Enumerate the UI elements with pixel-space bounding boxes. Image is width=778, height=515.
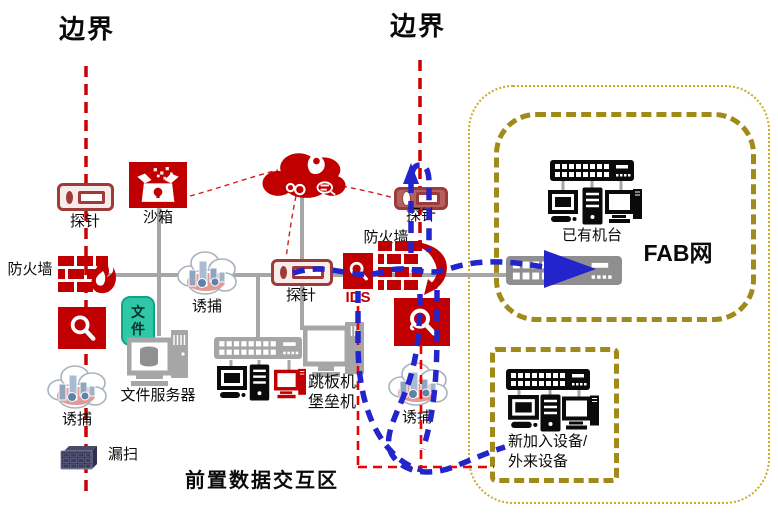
probe-left-label: 探针 — [50, 213, 120, 231]
threat-intel-cloud-icon — [259, 146, 349, 205]
new-devices-label-line1: 新加入设备/ — [508, 433, 616, 451]
new-devices-label-line2: 外来设备 — [508, 453, 616, 471]
red-terminal-icon — [274, 368, 306, 405]
honeypot-cloud-bottom-icon — [385, 357, 451, 414]
probe-led-icon — [280, 266, 287, 279]
boundary-right-label: 边界 — [383, 11, 453, 42]
decoy-bottom-label: 诱捕 — [382, 409, 452, 427]
switch-fab-icon — [506, 255, 622, 291]
vuln-scan-label: 漏扫 — [100, 446, 146, 464]
ids-label: IDS — [340, 289, 376, 307]
probe-center-device-icon — [271, 259, 333, 286]
switch-existing-icon — [550, 160, 634, 186]
jump-server-label-line2: 堡垒机 — [308, 393, 368, 412]
desktop-icon — [548, 190, 578, 228]
server-tower-icon — [249, 364, 270, 406]
probe-led-icon — [66, 191, 73, 204]
sandbox-icon — [129, 162, 187, 208]
front-zone-label: 前置数据交互区 — [162, 469, 362, 493]
probe-led-icon — [402, 191, 411, 206]
arrowhead-up-loop — [403, 163, 419, 184]
boundary-left-label: 边界 — [52, 14, 122, 45]
probe-center-label: 探针 — [266, 287, 336, 305]
file-server-label: 文件服务器 — [108, 387, 208, 405]
honeypot-cloud-left-icon — [44, 360, 110, 417]
probe-slot-icon — [416, 192, 440, 205]
jump-server-label-line1: 跳板机/ — [308, 373, 370, 392]
firewall-left-icon — [58, 256, 116, 296]
file-server-icon — [127, 330, 195, 393]
desktop-icon — [217, 366, 247, 404]
decoy-left-label: 诱捕 — [42, 411, 112, 429]
server-tower-icon — [540, 393, 561, 438]
server-tower-icon — [582, 187, 603, 230]
switch-center-icon — [214, 336, 302, 365]
probe-left-device-icon — [57, 183, 114, 211]
workstation-icon — [562, 395, 599, 436]
fab-net-label: FAB网 — [632, 240, 724, 268]
switch-new-devices-icon — [506, 369, 590, 395]
ids-icon — [343, 253, 373, 289]
decoy-center-label: 诱捕 — [172, 298, 242, 316]
audit-search-icon — [394, 298, 450, 346]
probe-slot-icon — [78, 191, 105, 204]
firewall-left-label: 防火墙 — [4, 261, 56, 279]
vuln-scan-icon — [60, 446, 98, 477]
firewall-right-icon — [378, 241, 452, 302]
probe-slot-icon — [292, 266, 324, 279]
detect-search-icon — [58, 307, 106, 349]
network-security-diagram: 边界 探针 沙箱 防火墙 — [0, 0, 778, 515]
probe-right-label: 探针 — [392, 207, 450, 225]
sandbox-label: 沙箱 — [124, 209, 192, 227]
workstation-icon — [605, 189, 642, 229]
honeypot-cloud-center-icon — [174, 246, 240, 303]
desktop-icon — [508, 395, 539, 434]
